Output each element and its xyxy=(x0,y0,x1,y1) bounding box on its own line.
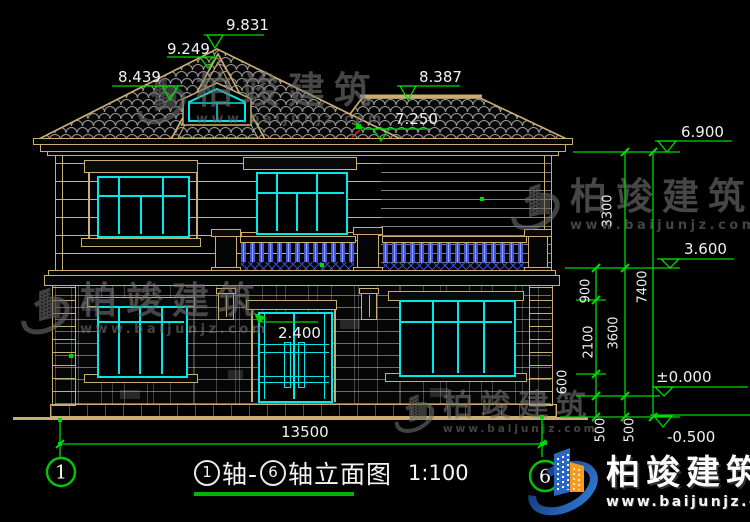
level-second-floor: 3.600 xyxy=(684,242,727,257)
title-name: 轴立面图 xyxy=(288,455,392,491)
dim-3600: 3600 xyxy=(608,316,621,349)
level-roof-right: 8.387 xyxy=(419,70,462,85)
brand-logo-url: www.baijunjz.com xyxy=(606,494,750,510)
title-scale: 1:100 xyxy=(408,461,469,485)
level-roof-left: 8.439 xyxy=(118,70,161,85)
axis-number-left: 1 xyxy=(55,464,67,483)
level-ridge: 9.831 xyxy=(226,18,269,33)
title-mid: 轴- xyxy=(222,455,258,491)
title-axis-start: 1 xyxy=(194,460,220,486)
dim-500-left: 500 xyxy=(595,418,608,443)
dim-900: 900 xyxy=(580,279,593,304)
level-roof-break: 7.250 xyxy=(395,112,438,127)
dim-500-right: 500 xyxy=(624,418,637,443)
drawing-title: 1 轴- 6 轴立面图 1:100 xyxy=(194,455,469,491)
dim-2100: 2100 xyxy=(583,325,596,358)
total-width-dim: 13500 xyxy=(281,425,329,440)
title-axis-end: 6 xyxy=(260,460,286,486)
brand-logo-icon xyxy=(524,446,602,520)
title-underline xyxy=(194,492,354,496)
brand-logo: 柏竣建筑 www.baijunjz.com xyxy=(524,446,750,520)
dim-7400: 7400 xyxy=(637,270,650,303)
dim-600: 600 xyxy=(557,370,570,395)
dim-3300: 3300 xyxy=(602,194,615,227)
level-eave: 6.900 xyxy=(681,125,724,140)
brand-logo-text: 柏竣建筑 xyxy=(606,456,750,490)
cad-elevation-drawing: 柏竣建筑 www.baijunjz.com 柏竣建筑 www.baijunjz.… xyxy=(0,0,750,522)
level-gable: 9.249 xyxy=(167,42,210,57)
level-ground-floor: ±0.000 xyxy=(656,370,712,385)
door-height-dim: 2.400 xyxy=(278,326,321,341)
dimension-linework xyxy=(0,0,750,522)
level-site: -0.500 xyxy=(667,430,715,445)
